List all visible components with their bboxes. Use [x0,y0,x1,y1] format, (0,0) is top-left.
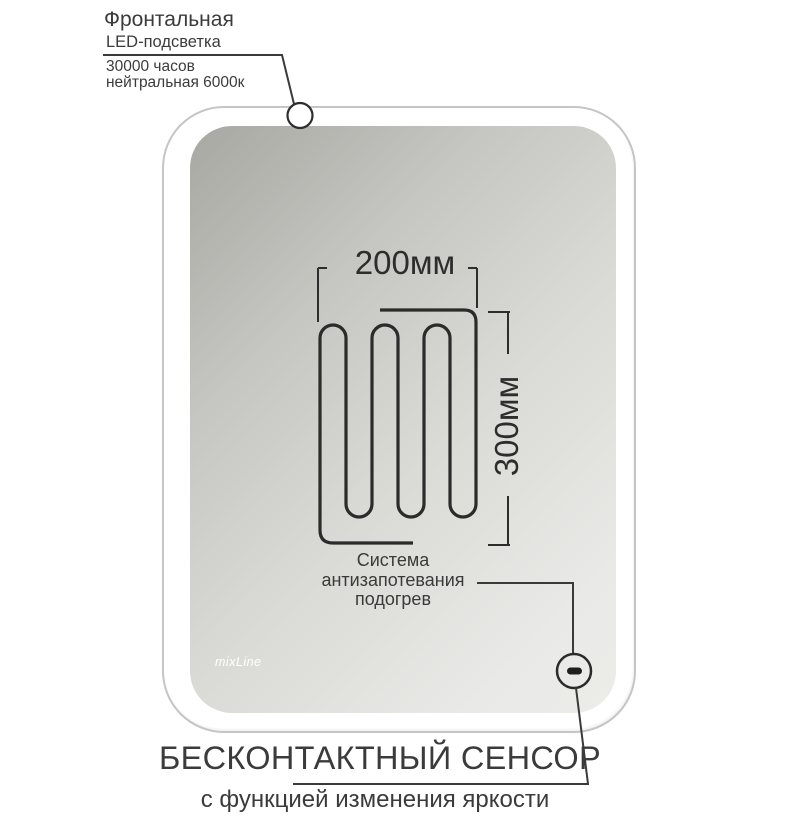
sensor-dash-icon [567,668,582,675]
led-callout-title: Фронтальная [104,9,234,30]
heater-caption-line: антизапотевания [283,571,503,591]
heater-height-label: 300мм [490,351,524,501]
led-callout-detail: 30000 часов [106,59,195,75]
heater-caption-line: подогрев [283,590,503,610]
sensor-title: БЕСКОНТАКТНЫЙ СЕНСОР [150,742,610,775]
led-mount-point-icon [288,103,313,128]
heater-width-label: 200мм [330,246,480,279]
heating-element-coil [320,310,476,543]
heater-caption-line: Система [283,551,503,571]
led-callout-subtitle: LED-подсветка [106,34,221,51]
diagram-linework [0,0,796,834]
brand-logo: mixLine [215,656,262,669]
sensor-subtitle: с функцией изменения яркости [175,788,575,812]
led-callout-detail: нейтральная 6000к [106,75,244,91]
heater-caption: Система антизапотевания подогрев [283,551,503,610]
infographic-page: { "led_callout": { "title": "Фронтальная… [0,0,796,834]
